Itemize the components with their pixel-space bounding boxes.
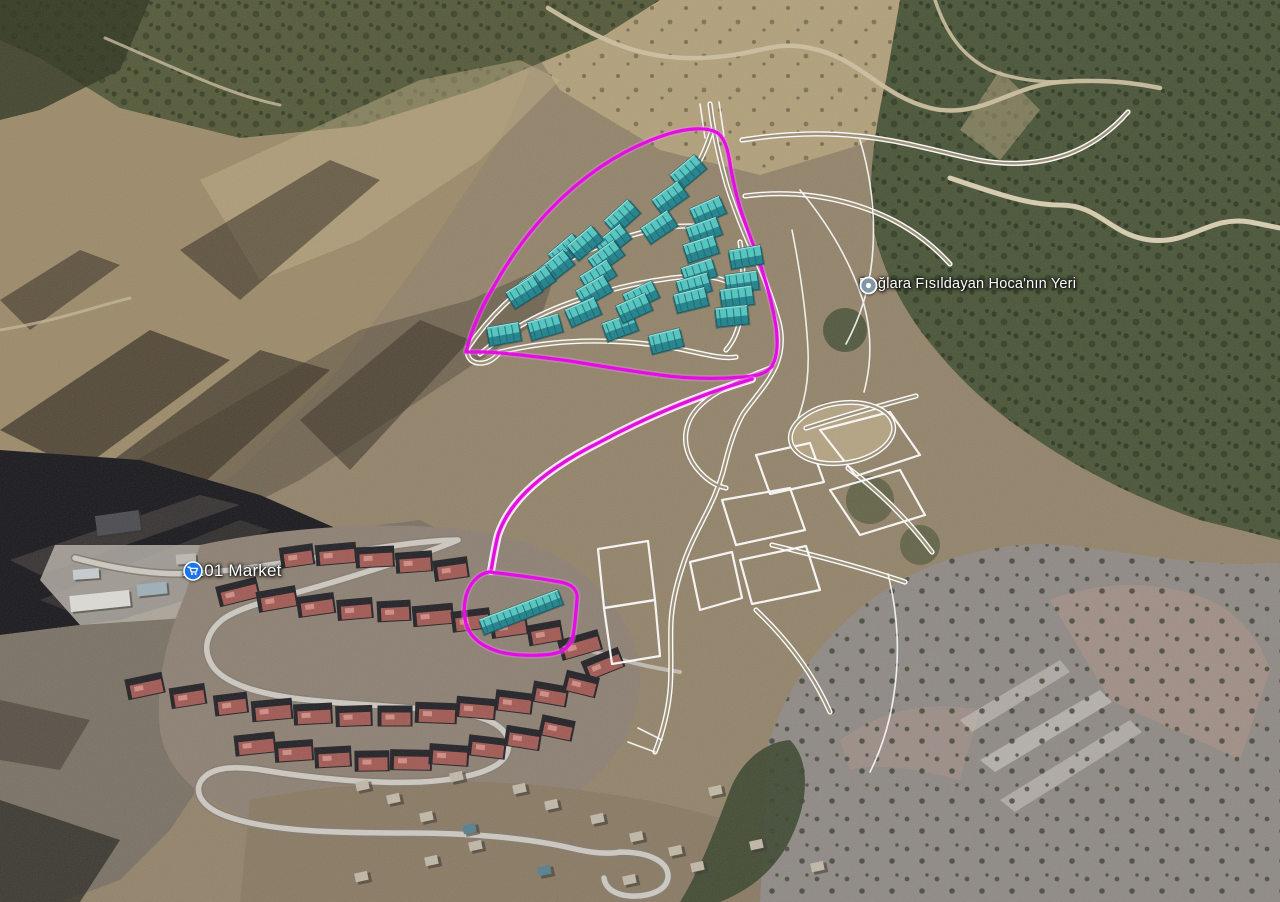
poi-label-a101[interactable]: A101 Market bbox=[183, 561, 282, 581]
location-dot-pin-icon bbox=[859, 276, 878, 295]
poi-label-hoca[interactable]: Dağlara Fısıldayan Hoca'nın Yeri bbox=[859, 276, 1076, 292]
satellite-imagery bbox=[0, 0, 1280, 902]
map-canvas[interactable]: Dağlara Fısıldayan Hoca'nın Yeri A101 Ma… bbox=[0, 0, 1280, 902]
shopping-cart-pin-icon bbox=[183, 561, 203, 581]
imagery-grain bbox=[0, 0, 1280, 902]
poi-label-text: Dağlara Fısıldayan Hoca'nın Yeri bbox=[859, 276, 1076, 292]
